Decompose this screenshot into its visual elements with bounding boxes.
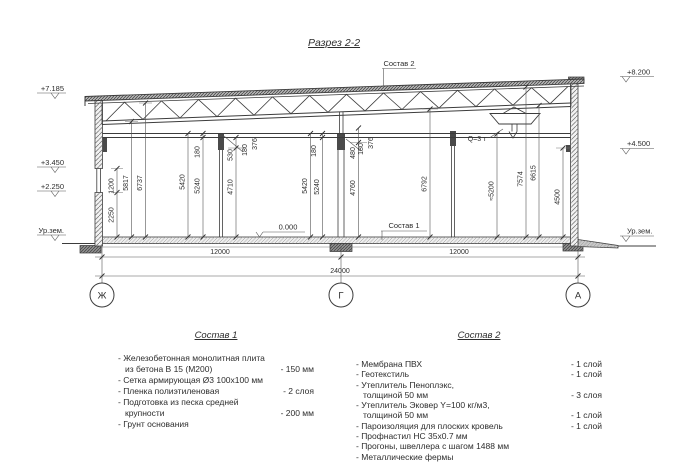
spec-item-value — [596, 380, 602, 390]
axis-bubbles: Ж Г А — [90, 283, 590, 307]
sostav2-callout: Состав 2 — [382, 59, 416, 86]
spec-item-text: - Подготовка из песка средней — [118, 397, 239, 408]
zero-level-mark: 0.000 — [256, 223, 305, 238]
dim-label: 5240 — [314, 179, 321, 195]
elevation-label: +4.500 — [627, 139, 650, 148]
sostav1-title: Состав 1 — [118, 330, 314, 341]
dim-label: 6615 — [531, 165, 538, 181]
right-wall — [566, 77, 584, 246]
spec-item-value: - 1 слой — [565, 359, 602, 369]
spec-item-value: - 150 мм — [275, 364, 314, 375]
spec-item-text: - Геотекстиль — [356, 369, 409, 379]
spec-item: - Грунт основания — [118, 419, 314, 430]
elevation-label: +8.200 — [627, 68, 650, 77]
vertical-dim-labels: 1200 2250 5817 6737 5420 5240 180 530 47… — [109, 137, 562, 223]
spec-item: - Геотекстиль- 1 слой — [356, 369, 602, 379]
dim-label: 12000 — [449, 249, 469, 256]
dim-label: 180 — [311, 145, 318, 157]
dim-label: 4760 — [350, 180, 357, 196]
spec-item-text: толщиной 50 мм — [356, 410, 428, 420]
dim-label: 180 — [358, 143, 365, 155]
spec-item-value: - 1 слой — [565, 369, 602, 379]
spec-item-value — [308, 353, 314, 364]
spec-item: толщиной 50 мм- 3 слоя — [356, 390, 602, 400]
elevation-mark-icon — [622, 77, 630, 83]
sostav2-block: Состав 2 - Мембрана ПВХ- 1 слой - Геотек… — [356, 330, 602, 462]
spec-item: - Железобетонная монолитная плита — [118, 353, 314, 364]
left-bay-post — [218, 133, 224, 237]
elevation-mark-icon — [256, 232, 263, 237]
drawing-sheet: Разрез 2-2 — [0, 0, 700, 474]
runway-beam — [103, 134, 571, 138]
dim-label: 180 — [195, 146, 202, 158]
spec-item: - Пароизоляция для плоских кровель- 1 сл… — [356, 421, 602, 431]
spec-item: толщиной 50 мм- 1 слой — [356, 410, 602, 420]
sostav1-block: Состав 1 - Железобетонная монолитная пли… — [118, 330, 314, 430]
dim-label: 376 — [252, 138, 259, 150]
ground-level-label: Ур.зем. — [39, 226, 64, 235]
section-view: Q=3 т 1200 2250 5817 6737 5420 5240 180 … — [0, 0, 700, 320]
elevation-mark-icon — [51, 167, 59, 173]
elevation-mark-icon — [622, 149, 630, 155]
ground-level-label: Ур.зем. — [627, 227, 652, 236]
dim-label: 480 — [350, 147, 357, 159]
dim-label: 6792 — [422, 176, 429, 192]
spec-item-value — [596, 431, 602, 441]
elevation-mark-icon — [51, 93, 59, 99]
spec-item: из бетона В 15 (М200)- 150 мм — [118, 364, 314, 375]
spec-item-value — [308, 397, 314, 408]
axis-label: Г — [338, 291, 343, 302]
dim-label: 5420 — [180, 174, 187, 190]
spec-item: - Утеплитель Эковер Y=100 кг/м3, — [356, 400, 602, 410]
elevation-mark-icon — [622, 236, 630, 242]
zero-level-label: 0.000 — [279, 223, 298, 232]
elevation-label: +3.450 — [41, 158, 64, 167]
elevation-label: +2.250 — [41, 182, 64, 191]
elevation-label: +7.185 — [41, 84, 64, 93]
dim-label: 1200 — [109, 178, 116, 194]
sostav1-ref-label: Состав 1 — [388, 221, 419, 230]
spec-item: - Утеплитель Пеноплэкс, — [356, 380, 602, 390]
elevation-marks-left: +7.185 +3.450 +2.250 Ур.зем. — [37, 84, 66, 241]
window — [97, 169, 101, 193]
spec-item: - Пленка полиэтиленовая- 2 слоя — [118, 386, 314, 397]
sostav2-items: - Мембрана ПВХ- 1 слой - Геотекстиль- 1 … — [356, 359, 602, 462]
elevation-marks-right: +8.200 +4.500 Ур.зем. — [620, 68, 654, 242]
spec-item-text: - Пароизоляция для плоских кровель — [356, 421, 503, 431]
spec-item-value: - 1 слой — [565, 421, 602, 431]
dim-label: 530 — [228, 149, 235, 161]
dim-label: 4710 — [228, 179, 235, 195]
spec-item-value — [596, 400, 602, 410]
center-column — [337, 112, 345, 237]
spec-item-value: - 200 мм — [275, 408, 314, 419]
spec-item-text: толщиной 50 мм — [356, 390, 428, 400]
runway-corbel — [566, 145, 571, 152]
spec-item: крупности- 200 мм — [118, 408, 314, 419]
spec-item-text: - Профнастил НС 35х0.7 мм — [356, 431, 468, 441]
spec-item-text: - Прогоны, швеллера с шагом 1488 мм — [356, 441, 509, 451]
spec-item-text: - Сетка армирующая Ø3 100х100 мм — [118, 375, 263, 386]
dim-label: 6737 — [137, 175, 144, 191]
spec-item-value — [308, 375, 314, 386]
spec-item: - Сетка армирующая Ø3 100х100 мм — [118, 375, 314, 386]
dim-label: 5240 — [195, 178, 202, 194]
spec-item-value — [596, 452, 602, 462]
axis-label: Ж — [98, 291, 107, 302]
spec-item-text: - Мембрана ПВХ — [356, 359, 422, 369]
dim-label: 180 — [242, 144, 249, 156]
dim-label: 5817 — [123, 175, 130, 191]
spec-item-text: - Утеплитель Эковер Y=100 кг/м3, — [356, 400, 490, 410]
footings — [80, 244, 583, 254]
spec-item-text: - Металлические фермы — [356, 452, 453, 462]
dim-label: 4500 — [555, 189, 562, 205]
axis-label: А — [575, 291, 582, 302]
dim-label: 12000 — [210, 249, 230, 256]
wall-corbel — [103, 138, 108, 152]
dim-label: 7574 — [518, 171, 525, 187]
spec-item-value: - 1 слой — [565, 410, 602, 420]
elevation-mark-icon — [51, 235, 59, 241]
dim-label: 376 — [368, 137, 375, 149]
sostav2-title: Состав 2 — [356, 330, 602, 341]
dim-label: 2250 — [109, 207, 116, 223]
dim-label: 24000 — [330, 268, 350, 275]
spec-item-value — [308, 419, 314, 430]
spec-item: - Мембрана ПВХ- 1 слой — [356, 359, 602, 369]
spec-item-text: - Пленка полиэтиленовая — [118, 386, 219, 397]
spec-item-text: крупности — [118, 408, 165, 419]
spec-item-value — [596, 441, 602, 451]
left-wall — [95, 97, 107, 246]
spec-item-text: из бетона В 15 (М200) — [118, 364, 212, 375]
spec-item: - Профнастил НС 35х0.7 мм — [356, 431, 602, 441]
spec-item-text: - Грунт основания — [118, 419, 189, 430]
right-bay-post — [450, 131, 456, 237]
spec-item-value: - 3 слоя — [565, 390, 602, 400]
spec-item: - Подготовка из песка средней — [118, 397, 314, 408]
crane-capacity-label: Q=3 т — [468, 136, 487, 143]
sostav2-ref-label: Состав 2 — [383, 59, 414, 68]
spec-item-text: - Утеплитель Пеноплэкс, — [356, 380, 454, 390]
elevation-mark-icon — [51, 191, 59, 197]
spec-item-value: - 2 слоя — [277, 386, 314, 397]
sostav1-items: - Железобетонная монолитная плита из бет… — [118, 353, 314, 430]
horizontal-dims: 12000 12000 24000 — [95, 247, 585, 283]
dim-label: ≈5200 — [489, 181, 496, 201]
dim-label: 5420 — [302, 178, 309, 194]
spec-item: - Металлические фермы — [356, 452, 602, 462]
spec-item-text: - Железобетонная монолитная плита — [118, 353, 265, 364]
ramp — [578, 240, 618, 249]
spec-item: - Прогоны, швеллера с шагом 1488 мм — [356, 441, 602, 451]
vertical-dim-lines — [111, 85, 570, 240]
